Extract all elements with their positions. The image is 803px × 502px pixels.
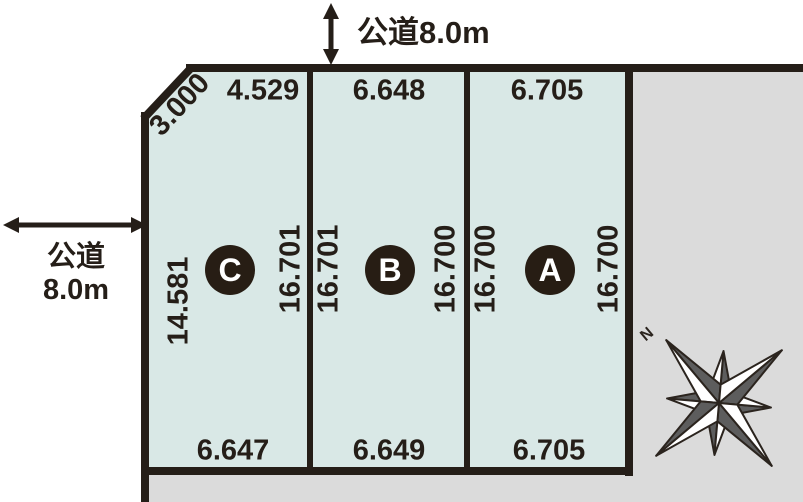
dim-c-bottom: 6.647 bbox=[197, 437, 270, 466]
boundary-left bbox=[141, 112, 149, 502]
plot-badge-c: C bbox=[205, 245, 255, 295]
dim-a-top: 6.705 bbox=[511, 77, 584, 106]
road-left-label: 公道 8.0m bbox=[20, 241, 132, 307]
dim-c-left: 14.581 bbox=[165, 257, 194, 346]
road-left-label-line2: 8.0m bbox=[20, 274, 132, 307]
road-left-label-line1: 公道 bbox=[20, 241, 132, 274]
dim-a-bottom: 6.705 bbox=[513, 437, 586, 466]
dim-c-right: 16.701 bbox=[277, 225, 306, 314]
compass-rose-icon: N bbox=[632, 316, 803, 491]
plot-badge-b: B bbox=[365, 245, 415, 295]
dim-c-top: 4.529 bbox=[227, 77, 300, 106]
boundary-top bbox=[186, 64, 803, 72]
road-width-arrow-vertical-icon bbox=[320, 3, 342, 65]
dim-b-top: 6.648 bbox=[353, 77, 426, 106]
dim-b-right: 16.700 bbox=[432, 225, 461, 314]
dim-b-left: 16.701 bbox=[315, 225, 344, 314]
compass-north-label: N bbox=[637, 324, 657, 344]
road-top-label: 公道8.0m bbox=[357, 16, 490, 50]
boundary-bottom bbox=[141, 467, 633, 475]
dim-a-left: 16.700 bbox=[472, 225, 501, 314]
land-plot-diagram: 公道8.0m 公道 8.0m 4.529 3.000 14.581 16.701… bbox=[0, 0, 803, 502]
plot-badge-a: A bbox=[525, 245, 575, 295]
dim-b-bottom: 6.649 bbox=[353, 437, 426, 466]
road-width-arrow-horizontal-icon bbox=[3, 214, 147, 236]
dim-a-right: 16.700 bbox=[595, 225, 624, 314]
